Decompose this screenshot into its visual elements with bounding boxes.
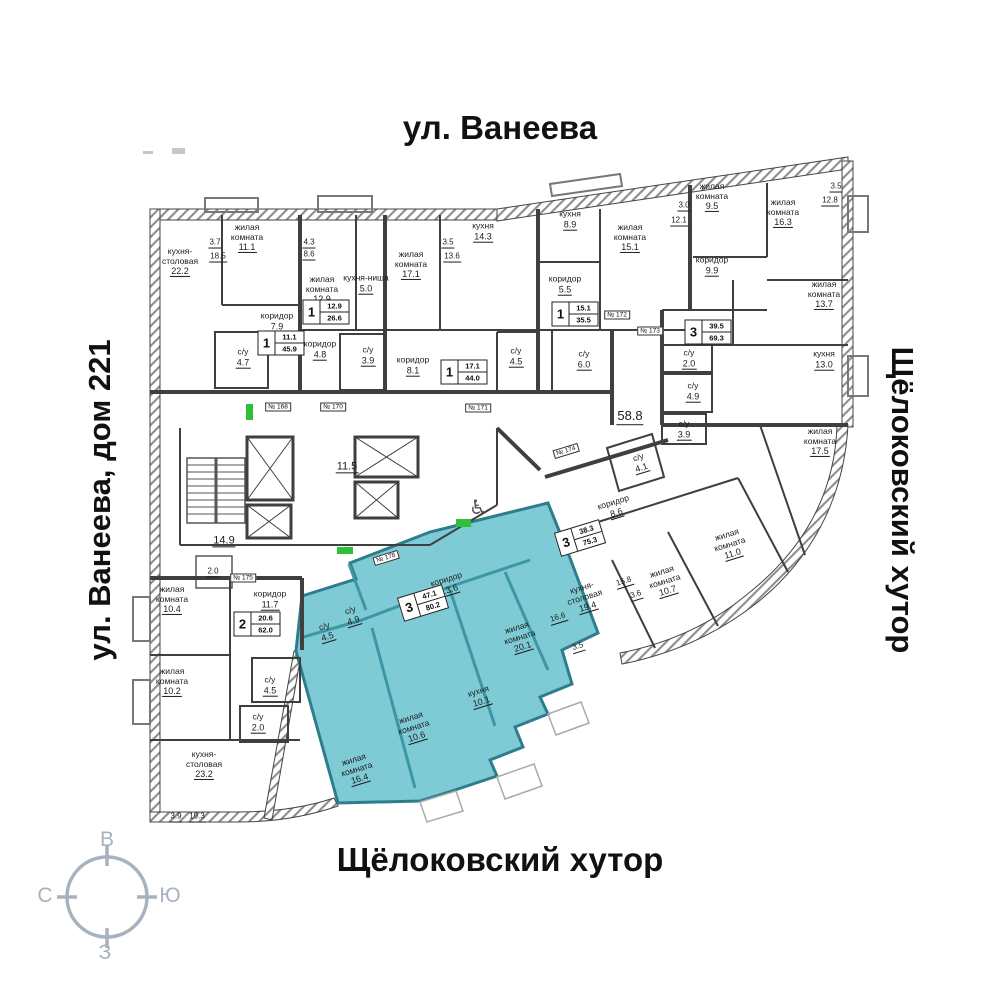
area-label: 12.1	[670, 216, 688, 227]
area-label: 2.0	[206, 567, 219, 578]
area-label: 14.9	[212, 534, 235, 547]
room-label: коридор8.1	[397, 356, 429, 377]
crop-artifact	[143, 148, 185, 154]
apartment-badge: 112.926.6	[303, 300, 350, 325]
stairwell	[187, 458, 245, 523]
room-label: коридор5.5	[549, 275, 581, 296]
room-label: кухня8.9	[559, 210, 581, 231]
room-label: кухня- столовая22.2	[162, 247, 198, 277]
room-label: с/у3.9	[361, 346, 376, 367]
room-label: жилая комната13.7	[808, 280, 840, 310]
area-label: 13.6	[443, 252, 461, 263]
compass-east: В	[100, 828, 114, 852]
room-label: коридор11.7	[254, 590, 286, 611]
room-label: коридор4.8	[304, 340, 336, 361]
room-label: жилая комната9.5	[696, 182, 728, 212]
room-label: жилая комната17.1	[395, 250, 427, 280]
apartment-badge: 117.144.0	[441, 360, 488, 385]
room-label: кухня13.0	[813, 350, 835, 371]
room-label: с/у2.0	[251, 713, 266, 734]
area-label: 3.7	[208, 238, 221, 249]
room-label: с/у4.5	[509, 347, 524, 368]
area-label: 3.9	[169, 812, 182, 823]
area-label: 11.5	[336, 460, 359, 473]
area-label: 58.8	[616, 409, 643, 425]
area-label: 8.6	[302, 250, 315, 261]
floor-plan-page: ♿ ул. Ванеева ул. Ванеева, дом 221 Щёлок…	[0, 0, 1000, 1000]
area-label: 3.0	[677, 201, 690, 212]
room-label: с/у3.9	[677, 420, 692, 441]
room-label: кухня- столовая23.2	[186, 750, 222, 780]
room-label: жилая комната10.4	[156, 585, 188, 615]
room-label: жилая комната10.2	[156, 667, 188, 697]
room-label: с/у4.9	[686, 382, 701, 403]
area-label: 3.5	[441, 238, 454, 249]
room-label: с/у4.5	[263, 676, 278, 697]
street-label-top: ул. Ванеева	[403, 109, 597, 147]
area-label: 3.5	[829, 182, 842, 193]
street-label-bottom: Щёлоковский хутор	[337, 841, 664, 879]
area-label: 12.8	[821, 196, 839, 207]
room-label: с/у2.0	[682, 349, 697, 370]
wheelchair-icon: ♿	[469, 495, 487, 519]
room-label: с/у6.0	[577, 350, 592, 371]
apartment-number-tag: № 173	[637, 327, 663, 336]
apartment-number-tag: № 171	[465, 404, 491, 413]
compass-north: С	[37, 884, 52, 908]
apartment-badge: 111.145.9	[258, 331, 305, 356]
area-label: 19.3	[188, 812, 206, 823]
room-label: с/у4.7	[236, 348, 251, 369]
apartment-badge: 339.569.3	[685, 320, 732, 345]
apartment-number-tag: № 168	[265, 403, 291, 412]
compass	[57, 846, 157, 948]
street-label-left: ул. Ванеева, дом 221	[82, 339, 118, 660]
room-label: жилая комната17.5	[804, 427, 836, 457]
room-label: жилая комната16.3	[767, 198, 799, 228]
room-label: коридор7.9	[261, 312, 293, 333]
elevator-shafts	[247, 437, 418, 538]
elevator-shaft-3	[355, 437, 418, 477]
entry-marker	[456, 519, 471, 527]
apartment-number-tag: № 175	[230, 574, 256, 583]
apartment-badge: 115.135.5	[552, 302, 599, 327]
room-label: кухня-ниша5.0	[343, 274, 388, 295]
apartment-badge: 220.662.0	[234, 612, 281, 637]
apartment-number-tag: № 172	[604, 311, 630, 320]
area-label: 4.3	[302, 238, 315, 249]
compass-south: Ю	[159, 884, 180, 908]
room-label: кухня14.3	[472, 222, 494, 243]
entry-marker	[246, 404, 253, 420]
entry-marker	[337, 547, 353, 554]
elevator-shaft-4	[355, 482, 398, 518]
room-label: жилая комната11.1	[231, 223, 263, 253]
street-label-right: Щёлоковский хутор	[884, 347, 920, 654]
compass-west: З	[99, 941, 112, 965]
room-label: коридор9.9	[696, 256, 728, 277]
area-label: 18.5	[209, 252, 227, 263]
apartment-number-tag: № 170	[320, 403, 346, 412]
elevator-shaft-1	[247, 437, 293, 500]
elevator-shaft-2	[247, 505, 291, 538]
room-label: жилая комната15.1	[614, 223, 646, 253]
